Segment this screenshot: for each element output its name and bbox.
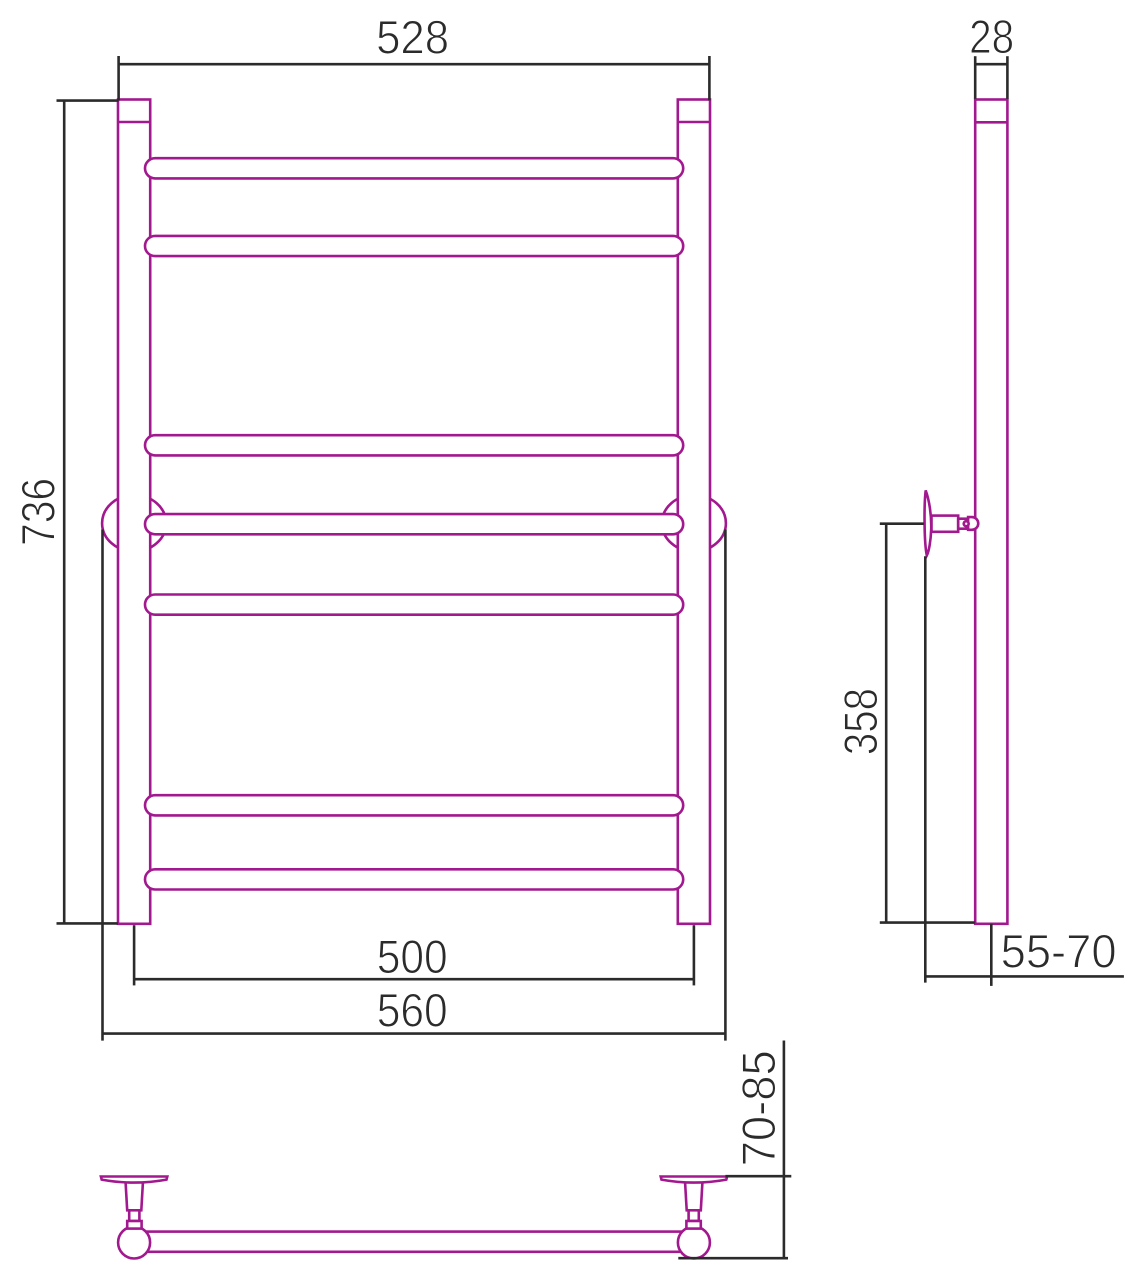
svg-text:70-85: 70-85: [732, 1050, 785, 1166]
svg-text:500: 500: [377, 930, 448, 983]
svg-text:560: 560: [377, 984, 448, 1037]
svg-text:358: 358: [834, 688, 887, 755]
svg-text:528: 528: [376, 10, 449, 63]
svg-text:55-70: 55-70: [1001, 925, 1117, 978]
svg-text:28: 28: [969, 10, 1014, 63]
svg-text:736: 736: [11, 478, 64, 546]
